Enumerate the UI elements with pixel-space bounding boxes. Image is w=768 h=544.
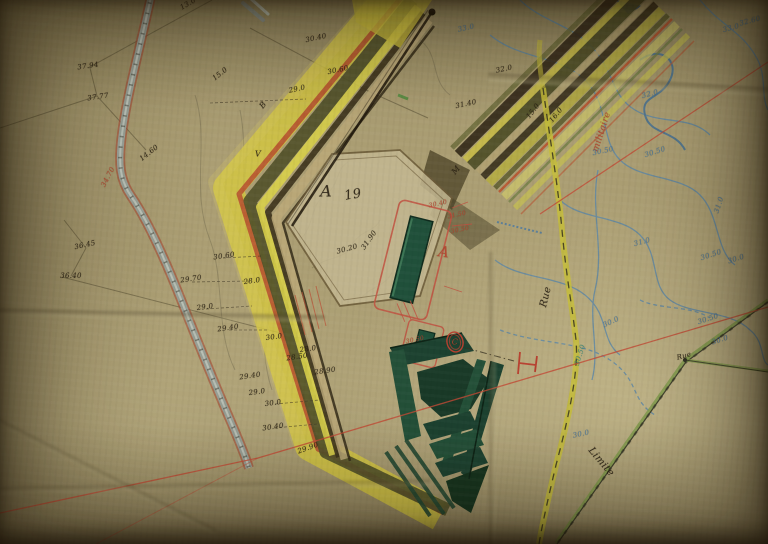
boundary-limite [556,300,768,544]
green-tick [398,95,408,99]
fortification-plan-drawing [0,0,768,544]
map-photo: 37.9437.7736.4536.4013.015.014.6034.7030… [0,0,768,544]
covered-way-stub [243,0,268,20]
